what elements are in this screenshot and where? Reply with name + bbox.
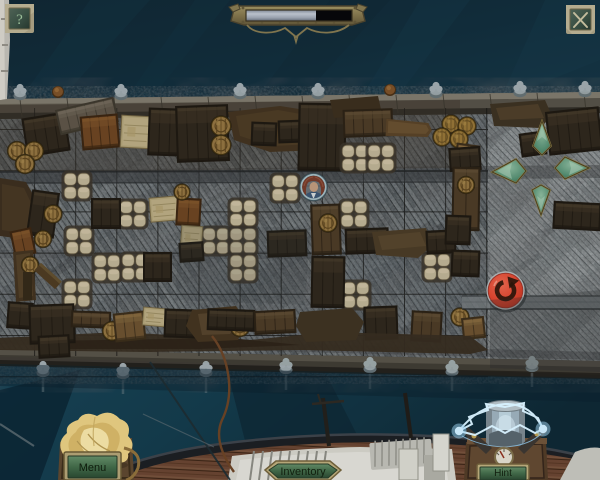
svg-text:Inventory: Inventory: [280, 466, 326, 478]
svg-text:Menu: Menu: [79, 462, 107, 474]
svg-text:?: ?: [16, 12, 23, 28]
svg-text:Hint: Hint: [494, 468, 512, 479]
